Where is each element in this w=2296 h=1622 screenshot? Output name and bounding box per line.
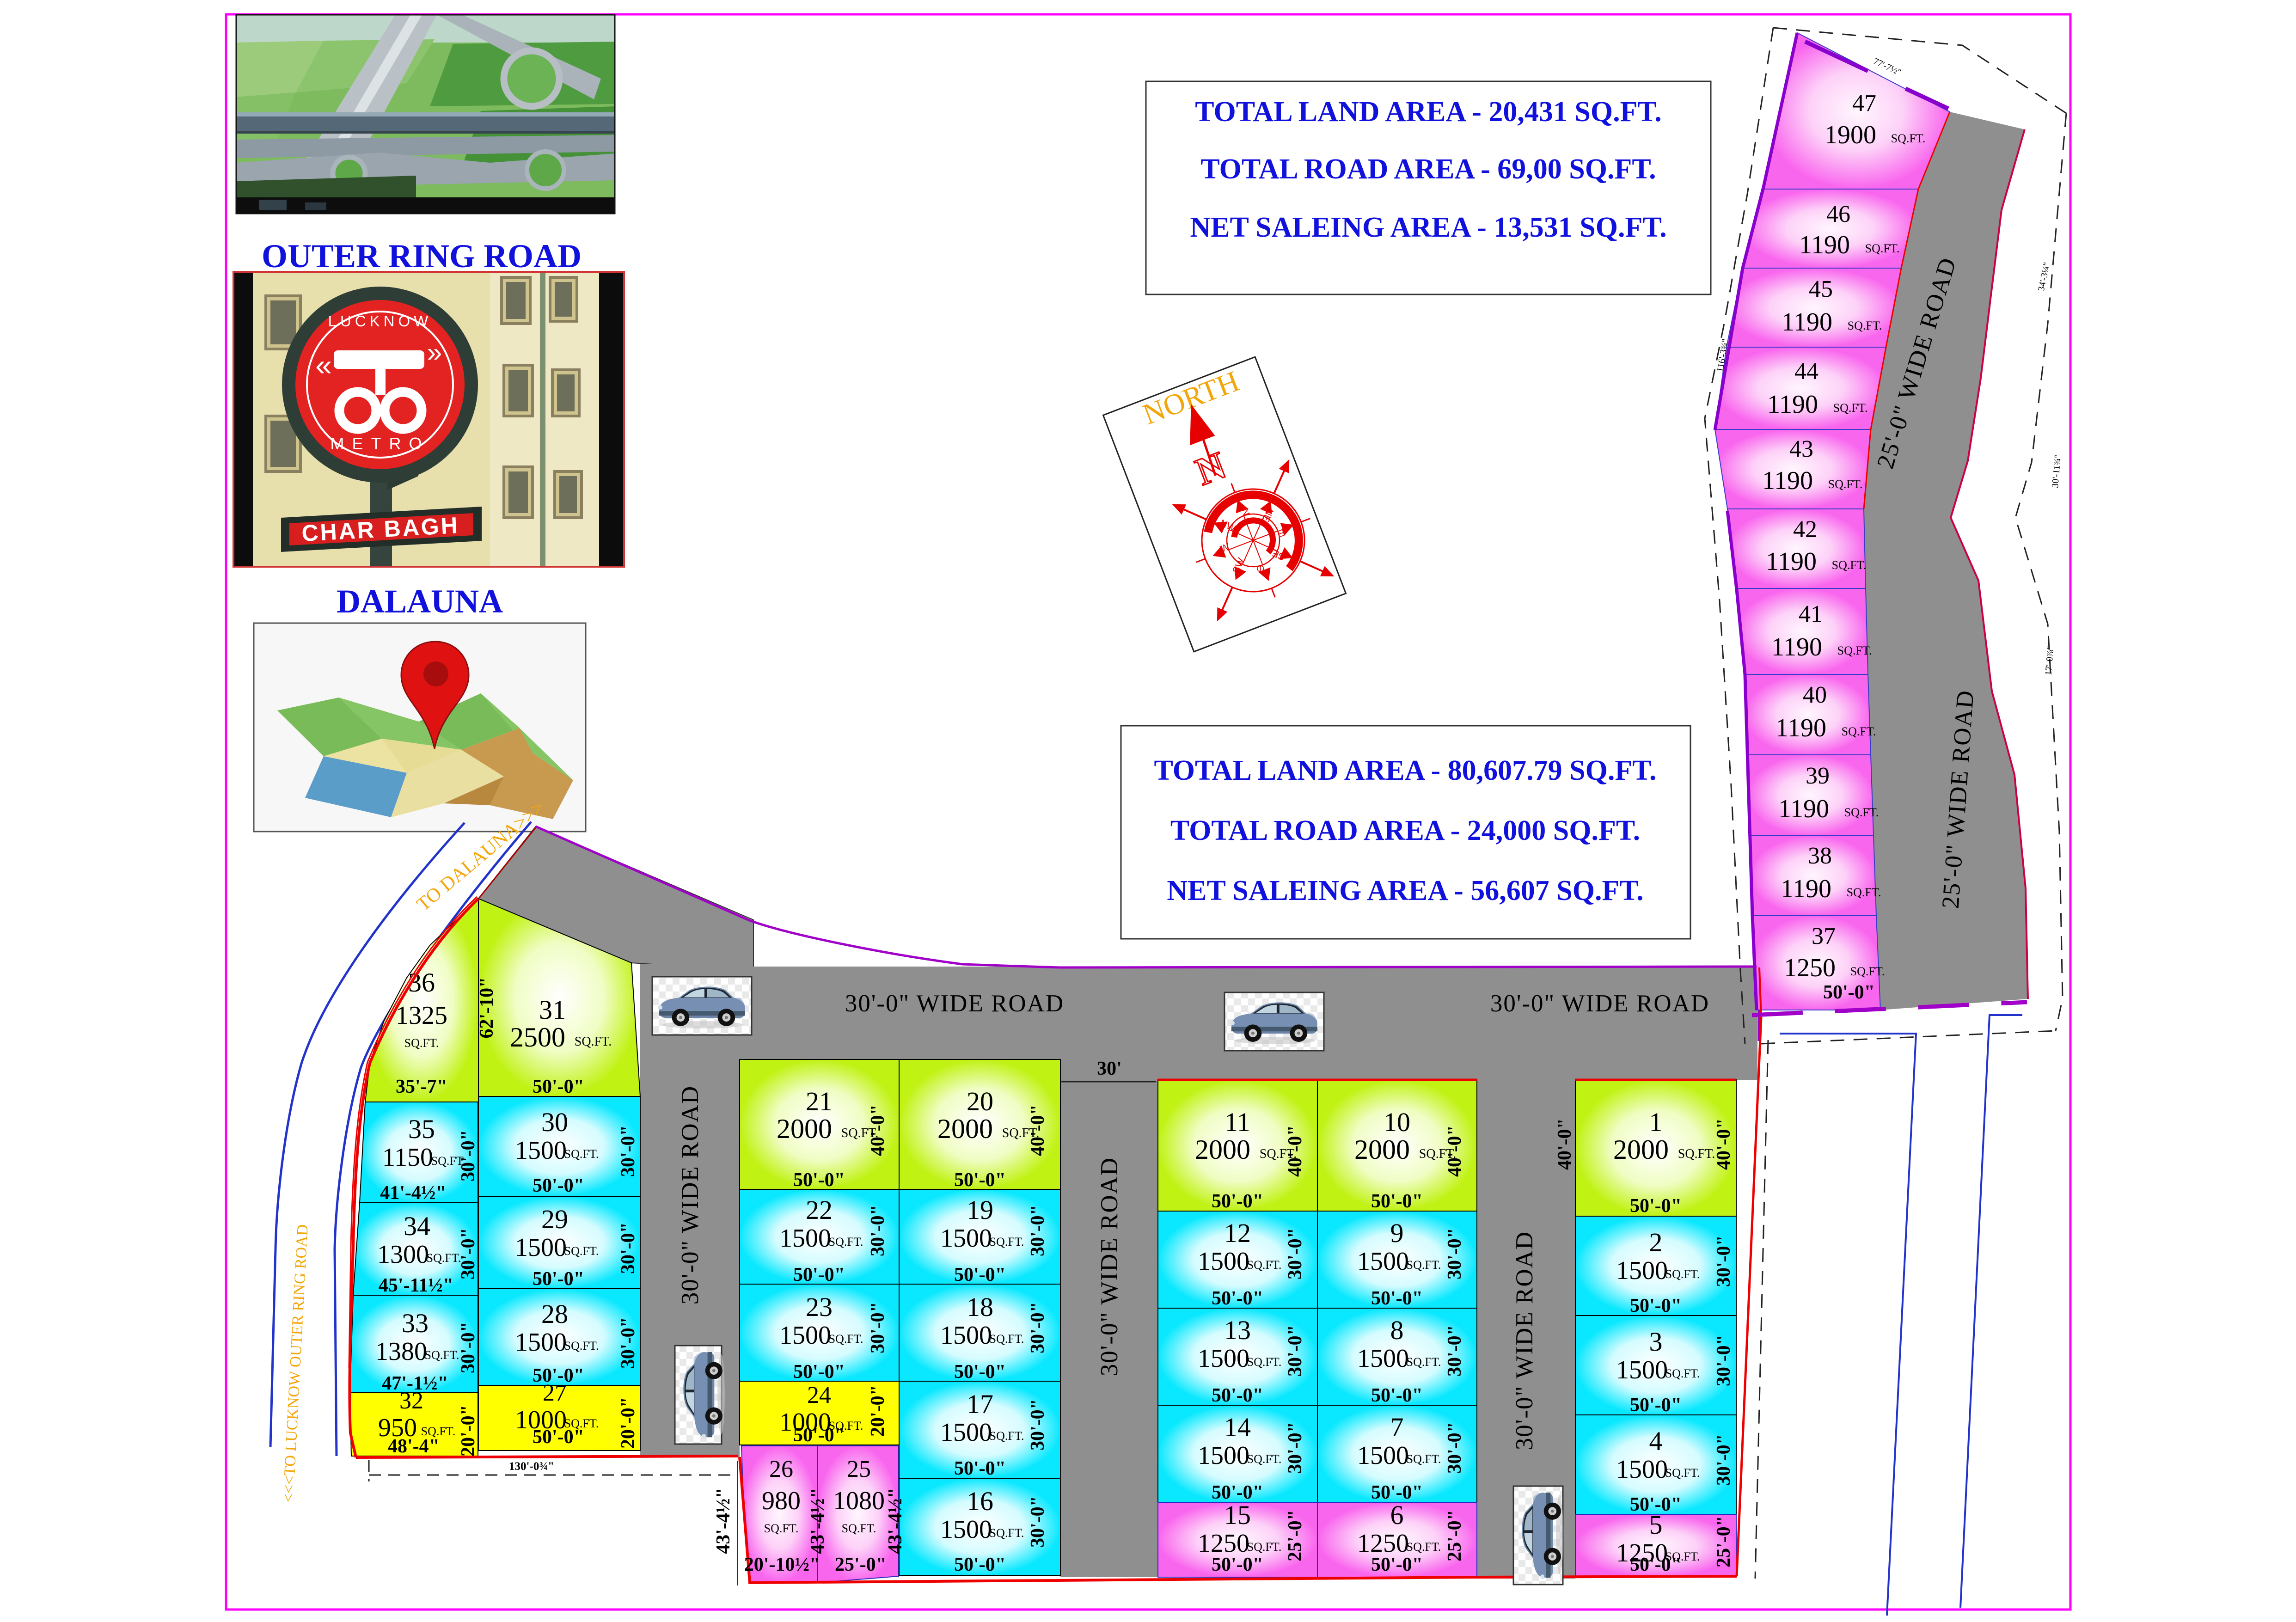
svg-text:43'-4½": 43'-4½" <box>807 1487 828 1554</box>
svg-text:1900: 1900 <box>1825 121 1876 149</box>
svg-text:TOTAL ROAD AREA - 69,00 SQ.FT.: TOTAL ROAD AREA - 69,00 SQ.FT. <box>1200 153 1656 185</box>
svg-text:25'-0": 25'-0" <box>835 1554 887 1575</box>
svg-text:50'-0": 50'-0" <box>1212 1288 1263 1309</box>
svg-text:40'-0": 40'-0" <box>1713 1118 1734 1170</box>
svg-text:1500: 1500 <box>940 1515 992 1544</box>
svg-text:SQ.FT.: SQ.FT. <box>1407 1540 1441 1554</box>
svg-text:18: 18 <box>967 1292 993 1322</box>
svg-text:2000: 2000 <box>937 1114 993 1144</box>
svg-text:SQ.FT.: SQ.FT. <box>1665 1267 1700 1281</box>
svg-text:30'-0": 30'-0" <box>618 1125 639 1177</box>
svg-text:LUCKNOW: LUCKNOW <box>328 312 432 330</box>
svg-text:39: 39 <box>1806 763 1830 789</box>
svg-text:30'-0" WIDE ROAD: 30'-0" WIDE ROAD <box>1490 990 1709 1017</box>
svg-text:50'-0": 50'-0" <box>954 1458 1006 1479</box>
svg-text:1500: 1500 <box>1616 1356 1668 1384</box>
svg-text:25'-0": 25'-0" <box>1444 1510 1465 1561</box>
svg-text:130'-0¾": 130'-0¾" <box>509 1460 554 1473</box>
svg-text:1500: 1500 <box>515 1136 567 1165</box>
svg-text:1500: 1500 <box>1616 1256 1668 1285</box>
svg-text:SQ.FT.: SQ.FT. <box>1848 319 1882 332</box>
svg-text:DALAUNA: DALAUNA <box>337 583 503 620</box>
svg-text:25: 25 <box>847 1456 871 1482</box>
svg-text:13: 13 <box>1224 1315 1251 1345</box>
svg-text:30'-0": 30'-0" <box>1285 1325 1306 1377</box>
svg-text:30'-0": 30'-0" <box>1285 1422 1306 1474</box>
svg-text:50'-0": 50'-0" <box>1371 1191 1423 1212</box>
svg-text:1190: 1190 <box>1771 633 1822 661</box>
svg-text:SQ.FT.: SQ.FT. <box>829 1332 863 1346</box>
svg-text:20: 20 <box>967 1086 993 1116</box>
svg-text:1380: 1380 <box>375 1337 427 1366</box>
svg-text:SQ.FT.: SQ.FT. <box>990 1332 1024 1346</box>
svg-text:1500: 1500 <box>1198 1441 1249 1470</box>
svg-text:40'-0": 40'-0" <box>1285 1125 1306 1177</box>
svg-text:44: 44 <box>1794 358 1818 385</box>
svg-text:30'-0": 30'-0" <box>1027 1496 1048 1548</box>
svg-text:50'-0": 50'-0" <box>793 1169 845 1191</box>
svg-text:1150: 1150 <box>382 1143 433 1172</box>
svg-text:SQ.FT.: SQ.FT. <box>1247 1258 1282 1272</box>
svg-text:2000: 2000 <box>1613 1134 1669 1165</box>
svg-text:30'-0": 30'-0" <box>1027 1302 1048 1353</box>
svg-text:4: 4 <box>1649 1426 1663 1456</box>
svg-text:30'-0": 30'-0" <box>1444 1325 1465 1377</box>
svg-text:35: 35 <box>408 1114 435 1144</box>
svg-text:1190: 1190 <box>1778 795 1829 823</box>
svg-text:SQ.FT.: SQ.FT. <box>1407 1452 1441 1466</box>
svg-text:30'-0": 30'-0" <box>618 1222 639 1274</box>
svg-text:SQ.FT.: SQ.FT. <box>1847 886 1881 899</box>
svg-text:50'-0": 50'-0" <box>1630 1554 1682 1575</box>
svg-text:8: 8 <box>1390 1315 1404 1345</box>
svg-text:7: 7 <box>1390 1412 1404 1442</box>
svg-text:30'-0": 30'-0" <box>458 1130 479 1181</box>
svg-text:40'-0": 40'-0" <box>1027 1104 1048 1156</box>
svg-text:1190: 1190 <box>1781 875 1831 903</box>
svg-text:50'-0": 50'-0" <box>533 1365 584 1386</box>
svg-text:SQ.FT.: SQ.FT. <box>764 1522 799 1535</box>
svg-text:1190: 1190 <box>1782 308 1832 337</box>
svg-text:1: 1 <box>1649 1107 1663 1137</box>
svg-text:SQ.FT.: SQ.FT. <box>1865 242 1900 255</box>
svg-text:1500: 1500 <box>1198 1247 1249 1276</box>
svg-text:NET SALEING AREA - 56,607 SQ.F: NET SALEING AREA - 56,607 SQ.FT. <box>1167 875 1643 906</box>
svg-text:30: 30 <box>541 1107 568 1137</box>
svg-text:1500: 1500 <box>1357 1247 1409 1276</box>
svg-text:TOTAL LAND AREA - 80,607.79 SQ: TOTAL LAND AREA - 80,607.79 SQ.FT. <box>1154 755 1657 786</box>
svg-text:50'-0": 50'-0" <box>1371 1288 1423 1309</box>
svg-text:1500: 1500 <box>515 1328 567 1357</box>
svg-text:1190: 1190 <box>1799 231 1850 259</box>
svg-text:30'-0" WIDE ROAD: 30'-0" WIDE ROAD <box>1096 1157 1123 1376</box>
svg-text:METRO: METRO <box>331 434 430 453</box>
svg-text:»: » <box>427 337 442 367</box>
svg-text:38: 38 <box>1808 843 1832 869</box>
svg-text:30'-0": 30'-0" <box>618 1317 639 1369</box>
svg-text:46: 46 <box>1826 201 1850 227</box>
svg-text:20'-10½": 20'-10½" <box>744 1554 820 1575</box>
svg-text:50'-0": 50'-0" <box>954 1264 1006 1285</box>
svg-text:30'-0": 30'-0" <box>458 1322 479 1373</box>
svg-text:40'-0": 40'-0" <box>1554 1118 1575 1170</box>
svg-text:SQ.FT.: SQ.FT. <box>1832 558 1867 572</box>
svg-text:16: 16 <box>967 1486 993 1516</box>
svg-text:50'-0": 50'-0" <box>533 1175 584 1196</box>
svg-text:NET SALEING AREA - 13,531 SQ.F: NET SALEING AREA - 13,531 SQ.FT. <box>1190 212 1666 243</box>
svg-text:25'-0": 25'-0" <box>1713 1516 1734 1567</box>
svg-text:SQ.FT.: SQ.FT. <box>1678 1147 1715 1161</box>
svg-text:31: 31 <box>539 995 566 1025</box>
svg-text:30'-0": 30'-0" <box>867 1205 888 1256</box>
svg-text:SQ.FT.: SQ.FT. <box>575 1034 612 1049</box>
svg-text:28: 28 <box>541 1299 568 1329</box>
svg-text:1190: 1190 <box>1776 714 1826 742</box>
svg-text:50'-0": 50'-0" <box>1630 1295 1682 1316</box>
svg-text:50'-0": 50'-0" <box>533 1426 584 1448</box>
svg-text:2000: 2000 <box>1354 1134 1410 1165</box>
svg-text:24: 24 <box>807 1382 831 1408</box>
svg-text:50'-0": 50'-0" <box>793 1264 845 1285</box>
svg-text:41'-4½": 41'-4½" <box>380 1182 446 1204</box>
svg-text:SQ.FT.: SQ.FT. <box>1665 1466 1700 1480</box>
svg-text:30'-0" WIDE ROAD: 30'-0" WIDE ROAD <box>677 1085 704 1304</box>
svg-text:21: 21 <box>806 1086 833 1116</box>
svg-text:37: 37 <box>1812 923 1836 949</box>
svg-text:SQ.FT.: SQ.FT. <box>1844 806 1879 819</box>
svg-text:1500: 1500 <box>1357 1344 1409 1373</box>
svg-text:50'-0": 50'-0" <box>1212 1191 1263 1212</box>
svg-text:14: 14 <box>1224 1412 1251 1442</box>
svg-text:6: 6 <box>1390 1500 1404 1530</box>
svg-text:SQ.FT.: SQ.FT. <box>1665 1367 1700 1380</box>
svg-text:50'-0": 50'-0" <box>1212 1554 1263 1575</box>
svg-text:1250: 1250 <box>1198 1529 1249 1558</box>
svg-text:50'-0": 50'-0" <box>1630 1395 1682 1416</box>
svg-text:2: 2 <box>1649 1227 1663 1257</box>
svg-text:1190: 1190 <box>1766 547 1817 576</box>
svg-text:1325: 1325 <box>396 1001 447 1030</box>
svg-text:SQ.FT.: SQ.FT. <box>564 1339 599 1353</box>
svg-text:SQ.FT.: SQ.FT. <box>990 1429 1024 1443</box>
svg-text:9: 9 <box>1390 1218 1404 1248</box>
svg-text:SQ.FT.: SQ.FT. <box>1828 477 1863 491</box>
svg-text:50'-0": 50'-0" <box>1371 1385 1423 1406</box>
svg-text:2500: 2500 <box>510 1022 565 1053</box>
svg-text:34: 34 <box>404 1211 430 1241</box>
svg-text:50'-0": 50'-0" <box>1630 1195 1682 1217</box>
svg-text:OUTER RING ROAD: OUTER RING ROAD <box>262 238 582 275</box>
svg-text:62'-10": 62'-10" <box>476 977 497 1039</box>
svg-text:40'-0": 40'-0" <box>1444 1125 1465 1177</box>
svg-text:SQ.FT.: SQ.FT. <box>404 1036 439 1050</box>
svg-text:50'-0": 50'-0" <box>1212 1482 1263 1503</box>
svg-text:SQ.FT.: SQ.FT. <box>1850 965 1885 978</box>
svg-text:30'-0": 30'-0" <box>1713 1334 1734 1386</box>
svg-text:30'-0": 30'-0" <box>1444 1422 1465 1474</box>
svg-text:26: 26 <box>769 1456 793 1482</box>
svg-text:45'-11½": 45'-11½" <box>379 1275 453 1296</box>
svg-text:30'-0": 30'-0" <box>867 1302 888 1353</box>
svg-text:SQ.FT.: SQ.FT. <box>425 1348 459 1362</box>
svg-text:1500: 1500 <box>1198 1344 1249 1373</box>
svg-text:SQ.FT.: SQ.FT. <box>564 1244 599 1258</box>
svg-text:SQ.FT.: SQ.FT. <box>564 1147 599 1161</box>
svg-text:1500: 1500 <box>779 1321 831 1350</box>
svg-text:SQ.FT.: SQ.FT. <box>990 1526 1024 1540</box>
svg-text:30'-0": 30'-0" <box>1713 1235 1734 1287</box>
svg-text:1250: 1250 <box>1784 954 1836 982</box>
svg-text:23: 23 <box>806 1292 833 1322</box>
svg-text:«: « <box>315 349 332 382</box>
svg-text:30'-0": 30'-0" <box>1713 1434 1734 1486</box>
svg-text:1500: 1500 <box>1357 1441 1409 1470</box>
svg-text:1500: 1500 <box>1616 1455 1668 1484</box>
svg-text:2000: 2000 <box>777 1114 832 1144</box>
svg-text:SQ.FT.: SQ.FT. <box>1837 644 1872 657</box>
svg-text:SQ.FT.: SQ.FT. <box>1247 1452 1282 1466</box>
svg-text:SQ.FT.: SQ.FT. <box>1247 1540 1282 1554</box>
svg-text:19: 19 <box>967 1195 993 1225</box>
svg-text:35'-7": 35'-7" <box>396 1076 447 1097</box>
svg-text:12: 12 <box>1224 1218 1251 1248</box>
svg-text:20'-0": 20'-0" <box>458 1405 479 1457</box>
svg-text:33: 33 <box>402 1308 429 1338</box>
svg-text:SQ.FT.: SQ.FT. <box>1247 1355 1282 1369</box>
svg-text:48'-4": 48'-4" <box>388 1436 440 1457</box>
svg-text:1080: 1080 <box>833 1487 885 1515</box>
svg-text:30'-0" WIDE ROAD: 30'-0" WIDE ROAD <box>845 990 1064 1017</box>
svg-text:20'-0": 20'-0" <box>867 1385 888 1437</box>
svg-text:50'-0": 50'-0" <box>1371 1554 1423 1575</box>
svg-text:SQ.FT.: SQ.FT. <box>1842 725 1876 738</box>
svg-text:30'-0": 30'-0" <box>458 1228 479 1279</box>
svg-text:980: 980 <box>762 1487 801 1515</box>
svg-text:1190: 1190 <box>1762 466 1813 495</box>
svg-text:29: 29 <box>541 1204 568 1234</box>
svg-text:3: 3 <box>1649 1327 1663 1357</box>
svg-text:SQ.FT.: SQ.FT. <box>990 1235 1024 1249</box>
svg-text:30'-0" WIDE ROAD: 30'-0" WIDE ROAD <box>1511 1231 1538 1450</box>
svg-text:TOTAL ROAD AREA - 24,000 SQ.FT: TOTAL ROAD AREA - 24,000 SQ.FT. <box>1170 815 1640 846</box>
svg-text:22: 22 <box>806 1195 833 1225</box>
svg-text:11: 11 <box>1225 1107 1250 1137</box>
svg-text:17: 17 <box>967 1389 993 1419</box>
svg-text:50'-0": 50'-0" <box>954 1169 1006 1191</box>
svg-text:43'-4½": 43'-4½" <box>713 1487 734 1554</box>
svg-text:50'-0": 50'-0" <box>1630 1494 1682 1515</box>
svg-text:TOTAL LAND AREA - 20,431 SQ.FT: TOTAL LAND AREA - 20,431 SQ.FT. <box>1195 96 1661 128</box>
svg-text:50'-0": 50'-0" <box>533 1268 584 1290</box>
svg-text:47: 47 <box>1852 90 1876 116</box>
svg-text:SQ.FT.: SQ.FT. <box>842 1522 876 1535</box>
svg-text:42: 42 <box>1793 516 1817 543</box>
svg-text:30'-0": 30'-0" <box>1444 1228 1465 1279</box>
svg-text:45: 45 <box>1809 276 1833 302</box>
svg-text:30'-0": 30'-0" <box>1027 1205 1048 1256</box>
svg-text:40'-0": 40'-0" <box>867 1104 888 1156</box>
svg-text:20'-0": 20'-0" <box>618 1397 639 1449</box>
svg-text:SQ.FT.: SQ.FT. <box>829 1235 863 1249</box>
svg-text:SQ.FT.: SQ.FT. <box>427 1251 461 1265</box>
svg-text:40: 40 <box>1803 682 1827 708</box>
svg-text:SQ.FT.: SQ.FT. <box>1891 132 1926 145</box>
svg-text:30'-0": 30'-0" <box>1027 1399 1048 1451</box>
svg-text:1500: 1500 <box>940 1418 992 1447</box>
svg-text:1250: 1250 <box>1357 1529 1409 1558</box>
svg-text:50'-0": 50'-0" <box>533 1076 584 1097</box>
svg-text:30': 30' <box>1097 1058 1122 1079</box>
svg-text:30'-0": 30'-0" <box>1285 1228 1306 1279</box>
svg-text:41: 41 <box>1799 601 1823 627</box>
svg-text:1500: 1500 <box>779 1224 831 1253</box>
svg-text:50'-0": 50'-0" <box>1212 1385 1263 1406</box>
svg-text:15: 15 <box>1224 1500 1251 1530</box>
svg-text:47'-1½": 47'-1½" <box>382 1373 448 1394</box>
svg-text:1300: 1300 <box>377 1240 429 1269</box>
svg-text:1190: 1190 <box>1767 390 1818 419</box>
svg-text:1500: 1500 <box>940 1321 992 1350</box>
svg-text:43: 43 <box>1789 436 1813 462</box>
svg-text:50'-0": 50'-0" <box>793 1361 845 1383</box>
svg-text:10: 10 <box>1384 1107 1410 1137</box>
svg-text:SQ.FT.: SQ.FT. <box>1407 1258 1441 1272</box>
svg-text:50'-0": 50'-0" <box>954 1361 1006 1383</box>
svg-text:50'-0": 50'-0" <box>1823 982 1875 1003</box>
svg-text:43'-4½": 43'-4½" <box>885 1487 906 1554</box>
svg-text:50'-0": 50'-0" <box>793 1425 845 1446</box>
svg-text:1500: 1500 <box>515 1233 567 1262</box>
svg-text:25'-0": 25'-0" <box>1285 1510 1306 1561</box>
svg-text:50'-0": 50'-0" <box>1371 1482 1423 1503</box>
svg-text:1500: 1500 <box>940 1224 992 1253</box>
svg-text:SQ.FT.: SQ.FT. <box>1833 401 1868 415</box>
svg-text:2000: 2000 <box>1195 1134 1250 1165</box>
svg-text:50'-0": 50'-0" <box>954 1554 1006 1575</box>
svg-text:SQ.FT.: SQ.FT. <box>1407 1355 1441 1369</box>
